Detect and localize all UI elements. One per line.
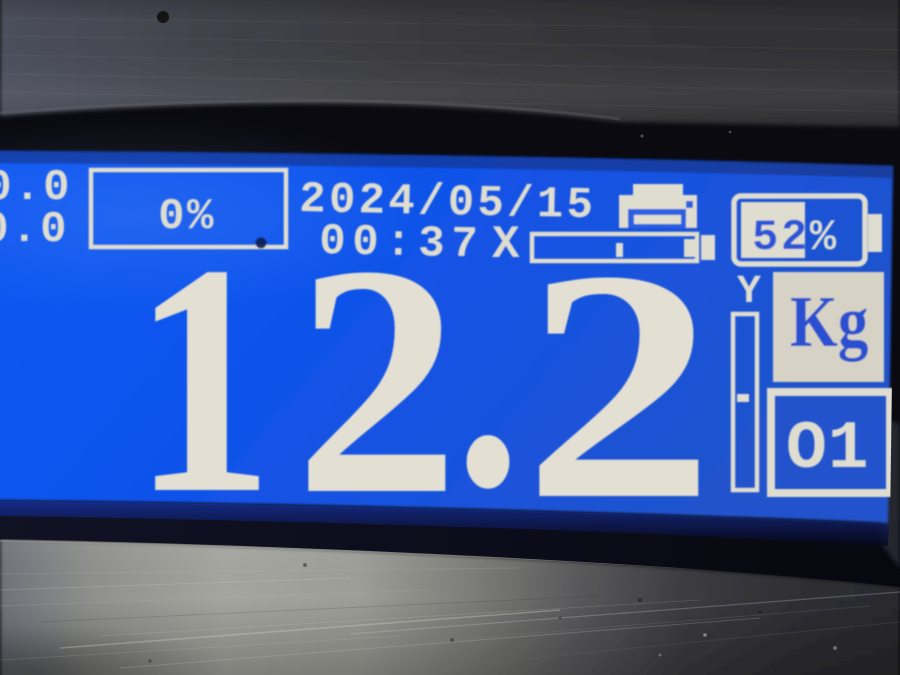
svg-text:0.0: 0.0 — [0, 205, 69, 255]
svg-text:Y: Y — [737, 270, 761, 315]
svg-text:O1: O1 — [786, 411, 870, 488]
svg-text:Kg: Kg — [790, 281, 869, 362]
svg-text:.: . — [455, 190, 521, 556]
